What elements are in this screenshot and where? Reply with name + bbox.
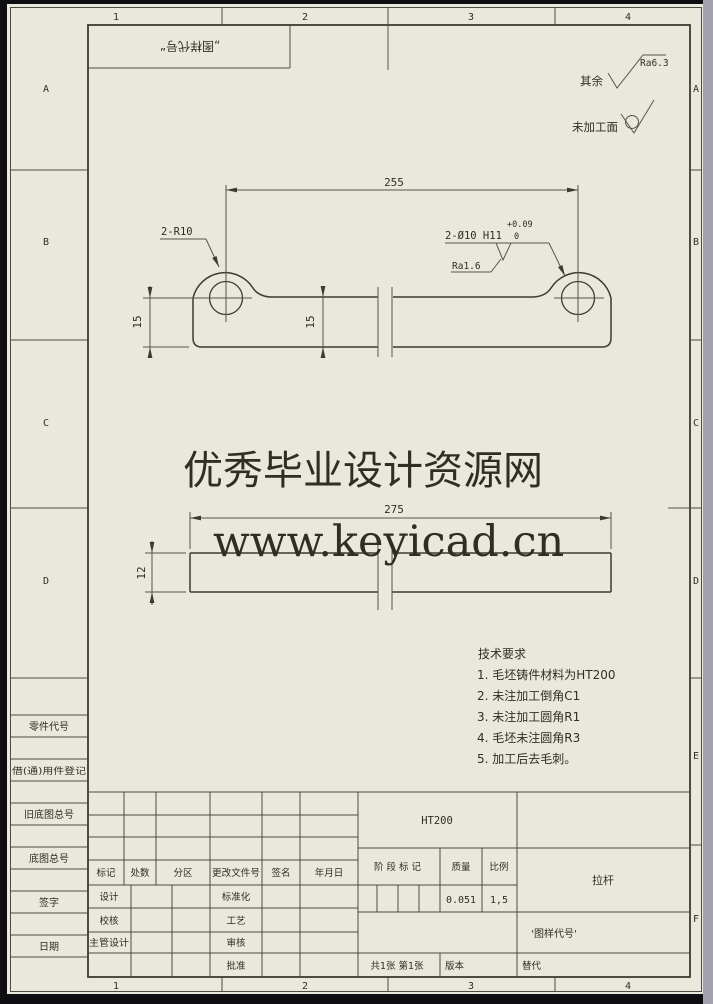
zone-number-top-4: 4 [625, 12, 631, 23]
dim-height-left: 15 [131, 315, 144, 328]
hole-tolerance-upper: +0.09 [507, 220, 533, 230]
version-label: 版本 [445, 960, 465, 972]
sign-review: 审核 [226, 937, 246, 949]
top-box-drawing-code: „图样代号“ [160, 39, 220, 54]
rev-header-date: 年月日 [315, 867, 344, 879]
label-date: 日期 [39, 941, 59, 953]
zone-letter-right-c: C [693, 418, 699, 429]
others-roughness-value: Ra6.3 [640, 58, 669, 69]
sign-standardization: 标准化 [222, 891, 251, 903]
zone-number-bottom-4: 4 [625, 981, 631, 992]
part-name: 拉杆 [592, 873, 614, 887]
dim-side-overall: 275 [384, 503, 404, 516]
stage-mark-label: 阶段标记 [374, 861, 424, 873]
tech-item-1: 1. 毛坯铸件材料为HT200 [477, 667, 616, 682]
zone-letter-left-a: A [43, 84, 49, 95]
zone-number-top-1: 1 [113, 12, 119, 23]
right-scroll-strip [703, 0, 713, 1004]
mass-label: 质量 [451, 861, 471, 873]
zone-letter-right-a: A [693, 84, 699, 95]
sign-process: 工艺 [226, 916, 245, 927]
others-label: 其余 [580, 74, 603, 88]
zone-number-bottom-2: 2 [302, 981, 308, 992]
watermark-line2: www.keyicad.cn [213, 517, 564, 567]
tech-item-3: 3. 未注加工圆角R1 [477, 709, 580, 724]
drawing-canvas: 1 2 3 4 1 2 3 4 A B C D A B C D E F „图样代… [0, 0, 713, 1004]
tech-item-4: 4. 毛坯未注圆角R3 [477, 730, 580, 745]
substitute-label: 替代 [522, 960, 542, 972]
sheet-count: 共1张 第1张 [370, 960, 424, 972]
label-signature: 签字 [39, 896, 59, 909]
hole-tolerance-lower: 0 [514, 232, 519, 242]
sign-chief-design: 主管设计 [89, 937, 130, 949]
zone-letter-left-b: B [43, 237, 49, 248]
material-value: HT200 [421, 815, 453, 827]
cast-surface-label: 未加工面 [572, 120, 618, 134]
rev-header-mark: 标记 [96, 867, 116, 879]
dim-hole-note: 2-Ø10 H11 [445, 230, 502, 242]
zone-letter-right-e: E [693, 751, 699, 762]
rev-header-doc-no: 更改文件号 [212, 867, 260, 879]
paper [7, 4, 703, 994]
dim-height-mid: 15 [304, 315, 317, 328]
label-master-no: 底图总号 [29, 852, 69, 865]
label-old-master-no: 旧底图总号 [24, 808, 74, 821]
rev-header-signature: 签名 [271, 867, 290, 879]
tech-item-2: 2. 未注加工倒角C1 [477, 688, 580, 703]
zone-letter-left-d: D [43, 576, 49, 587]
label-borrowed-parts: 借(通)用件登记 [12, 765, 86, 777]
zone-number-bottom-1: 1 [113, 981, 119, 992]
scale-value: 1,5 [490, 895, 508, 906]
mass-value: 0.051 [446, 895, 476, 906]
rev-header-zone: 分区 [173, 868, 193, 879]
tech-item-5: 5. 加工后去毛刺。 [477, 752, 576, 766]
watermark-line1: 优秀毕业设计资源网 [183, 448, 543, 494]
zone-letter-left-c: C [43, 418, 49, 429]
dim-fillet-note: 2-R10 [161, 226, 193, 238]
rev-header-count: 处数 [130, 867, 150, 879]
zone-number-bottom-3: 3 [468, 981, 474, 992]
zone-number-top-3: 3 [468, 12, 474, 23]
zone-number-top-2: 2 [302, 12, 308, 23]
sign-design: 设计 [99, 891, 119, 903]
scale-label: 比例 [489, 861, 508, 873]
tech-title: 技术要求 [478, 647, 526, 661]
hole-roughness-value: Ra1.6 [452, 261, 481, 272]
label-part-code: 零件代号 [29, 721, 69, 733]
dim-overall-length: 255 [384, 176, 404, 189]
zone-letter-right-b: B [693, 237, 699, 248]
dim-thickness: 12 [135, 566, 148, 579]
zone-letter-right-f: F [693, 914, 699, 925]
zone-letter-right-d: D [693, 576, 699, 587]
sign-approve: 批准 [226, 960, 246, 972]
drawing-code: '图样代号' [531, 927, 577, 940]
cad-drawing-sheet: 1 2 3 4 1 2 3 4 A B C D A B C D E F „图样代… [0, 0, 713, 1004]
sign-check: 校核 [99, 915, 119, 927]
